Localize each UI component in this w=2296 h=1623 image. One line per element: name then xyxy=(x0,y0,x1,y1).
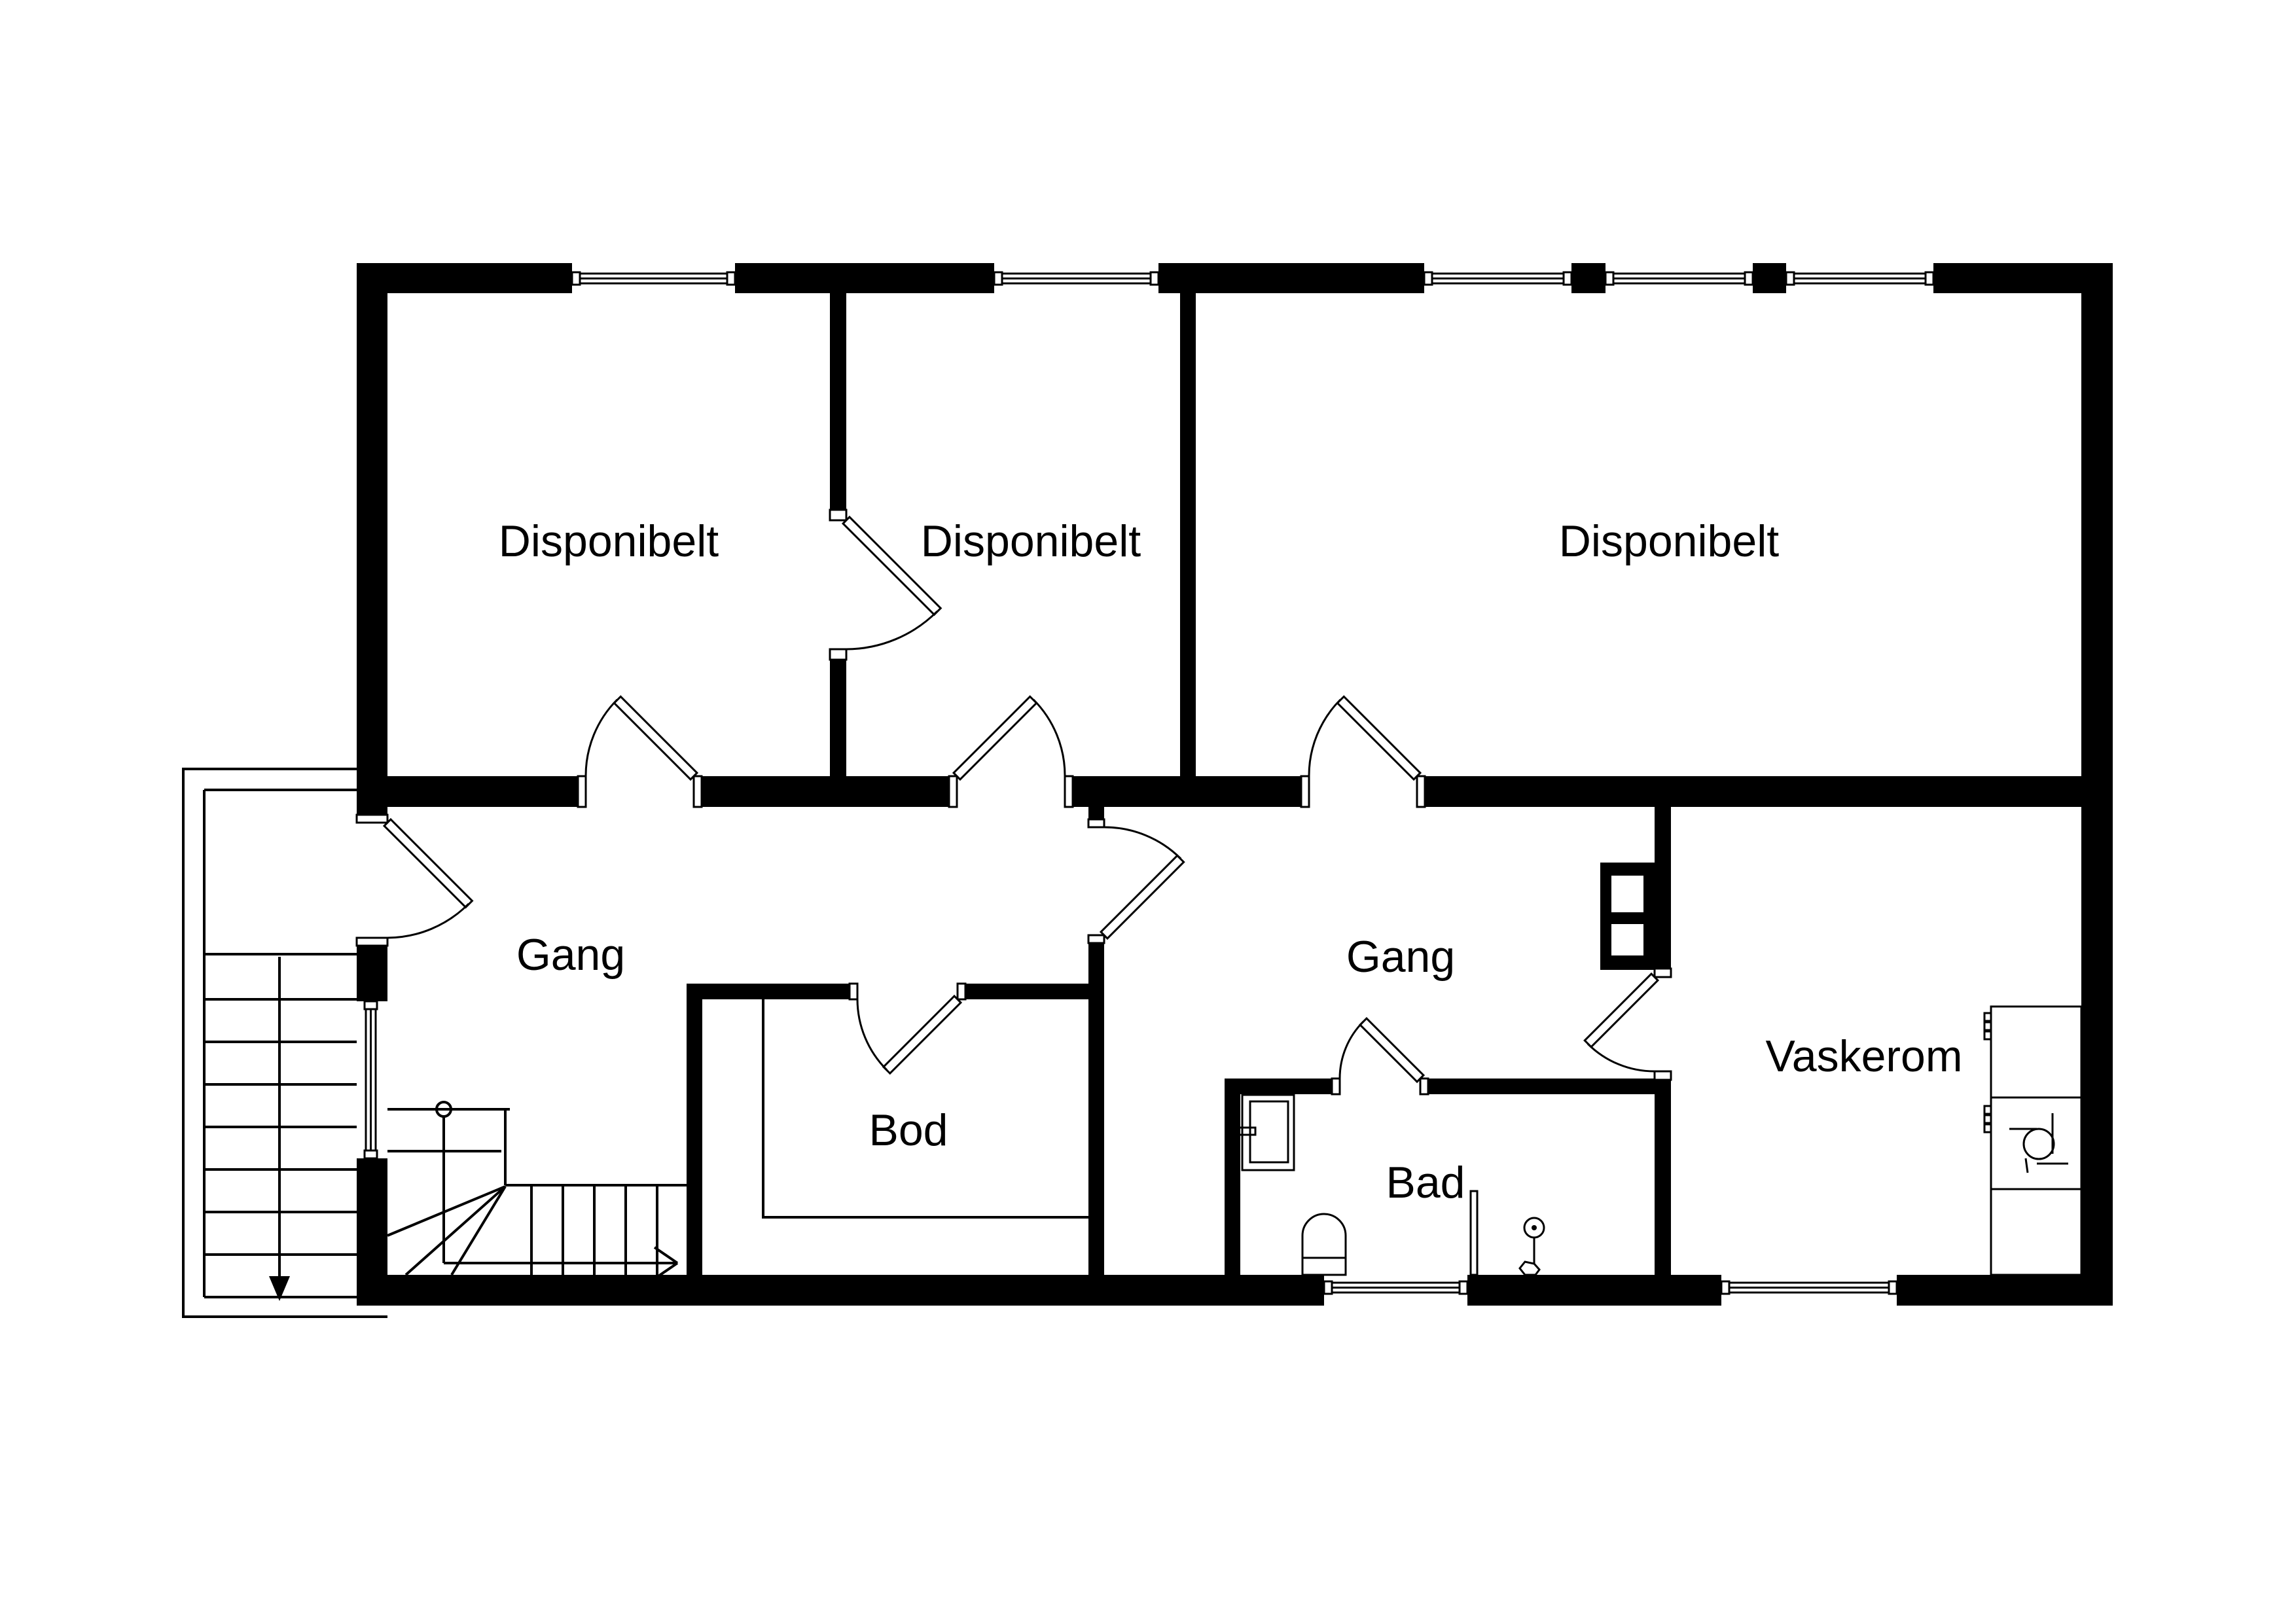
room-label-gang-left: Gang xyxy=(516,930,625,980)
room-label-vaskerom: Vaskerom xyxy=(1765,1031,1962,1081)
window-6 xyxy=(1324,1281,1467,1294)
plan-background xyxy=(0,0,2296,1623)
window-4 xyxy=(1605,272,1753,285)
window-5 xyxy=(1786,272,1933,285)
room-label-bod: Bod xyxy=(869,1105,948,1155)
room-label-gang-right: Gang xyxy=(1346,932,1455,982)
room-label-bad: Bad xyxy=(1386,1158,1465,1207)
window-8 xyxy=(365,1001,377,1158)
window-3 xyxy=(1424,272,1571,285)
room-label-disponibelt-1: Disponibelt xyxy=(499,516,719,566)
floor-plan-drawing: Disponibelt Disponibelt Disponibelt Gang… xyxy=(0,0,2296,1623)
window-1 xyxy=(572,272,735,285)
chimney-flue xyxy=(1600,863,1655,970)
room-label-disponibelt-3: Disponibelt xyxy=(1559,516,1780,566)
window-2 xyxy=(994,272,1158,285)
room-label-disponibelt-2: Disponibelt xyxy=(921,516,1141,566)
floor-plan-page: Disponibelt Disponibelt Disponibelt Gang… xyxy=(0,0,2296,1623)
window-7 xyxy=(1721,1281,1897,1294)
